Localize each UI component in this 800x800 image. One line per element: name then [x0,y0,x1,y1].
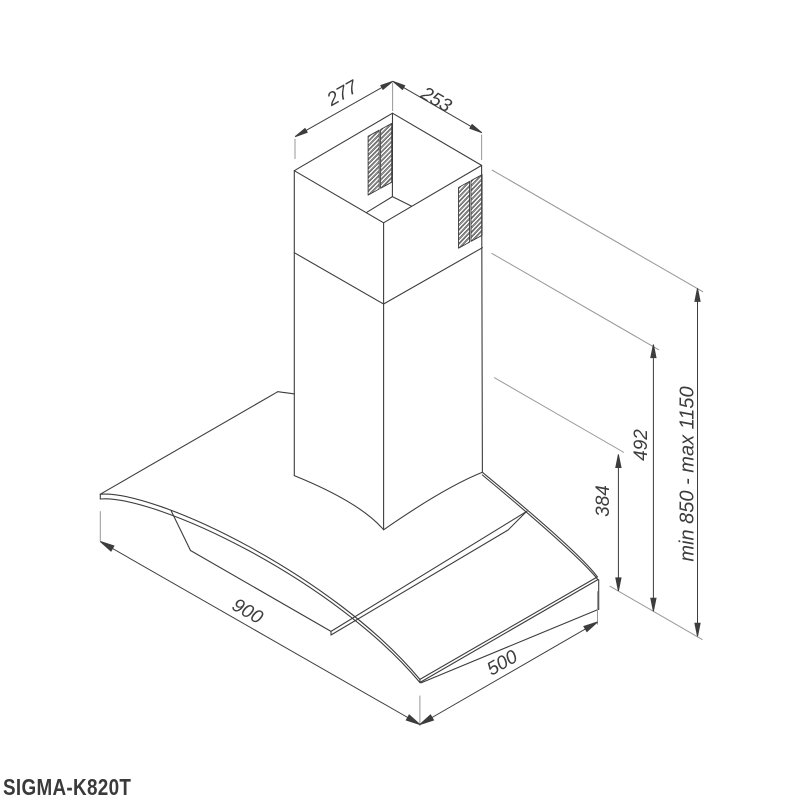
svg-text:min 850 - max 1150: min 850 - max 1150 [677,386,699,561]
svg-text:492: 492 [631,429,652,461]
svg-text:384: 384 [593,485,614,517]
svg-text:SIGMA-K820T: SIGMA-K820T [3,775,131,800]
